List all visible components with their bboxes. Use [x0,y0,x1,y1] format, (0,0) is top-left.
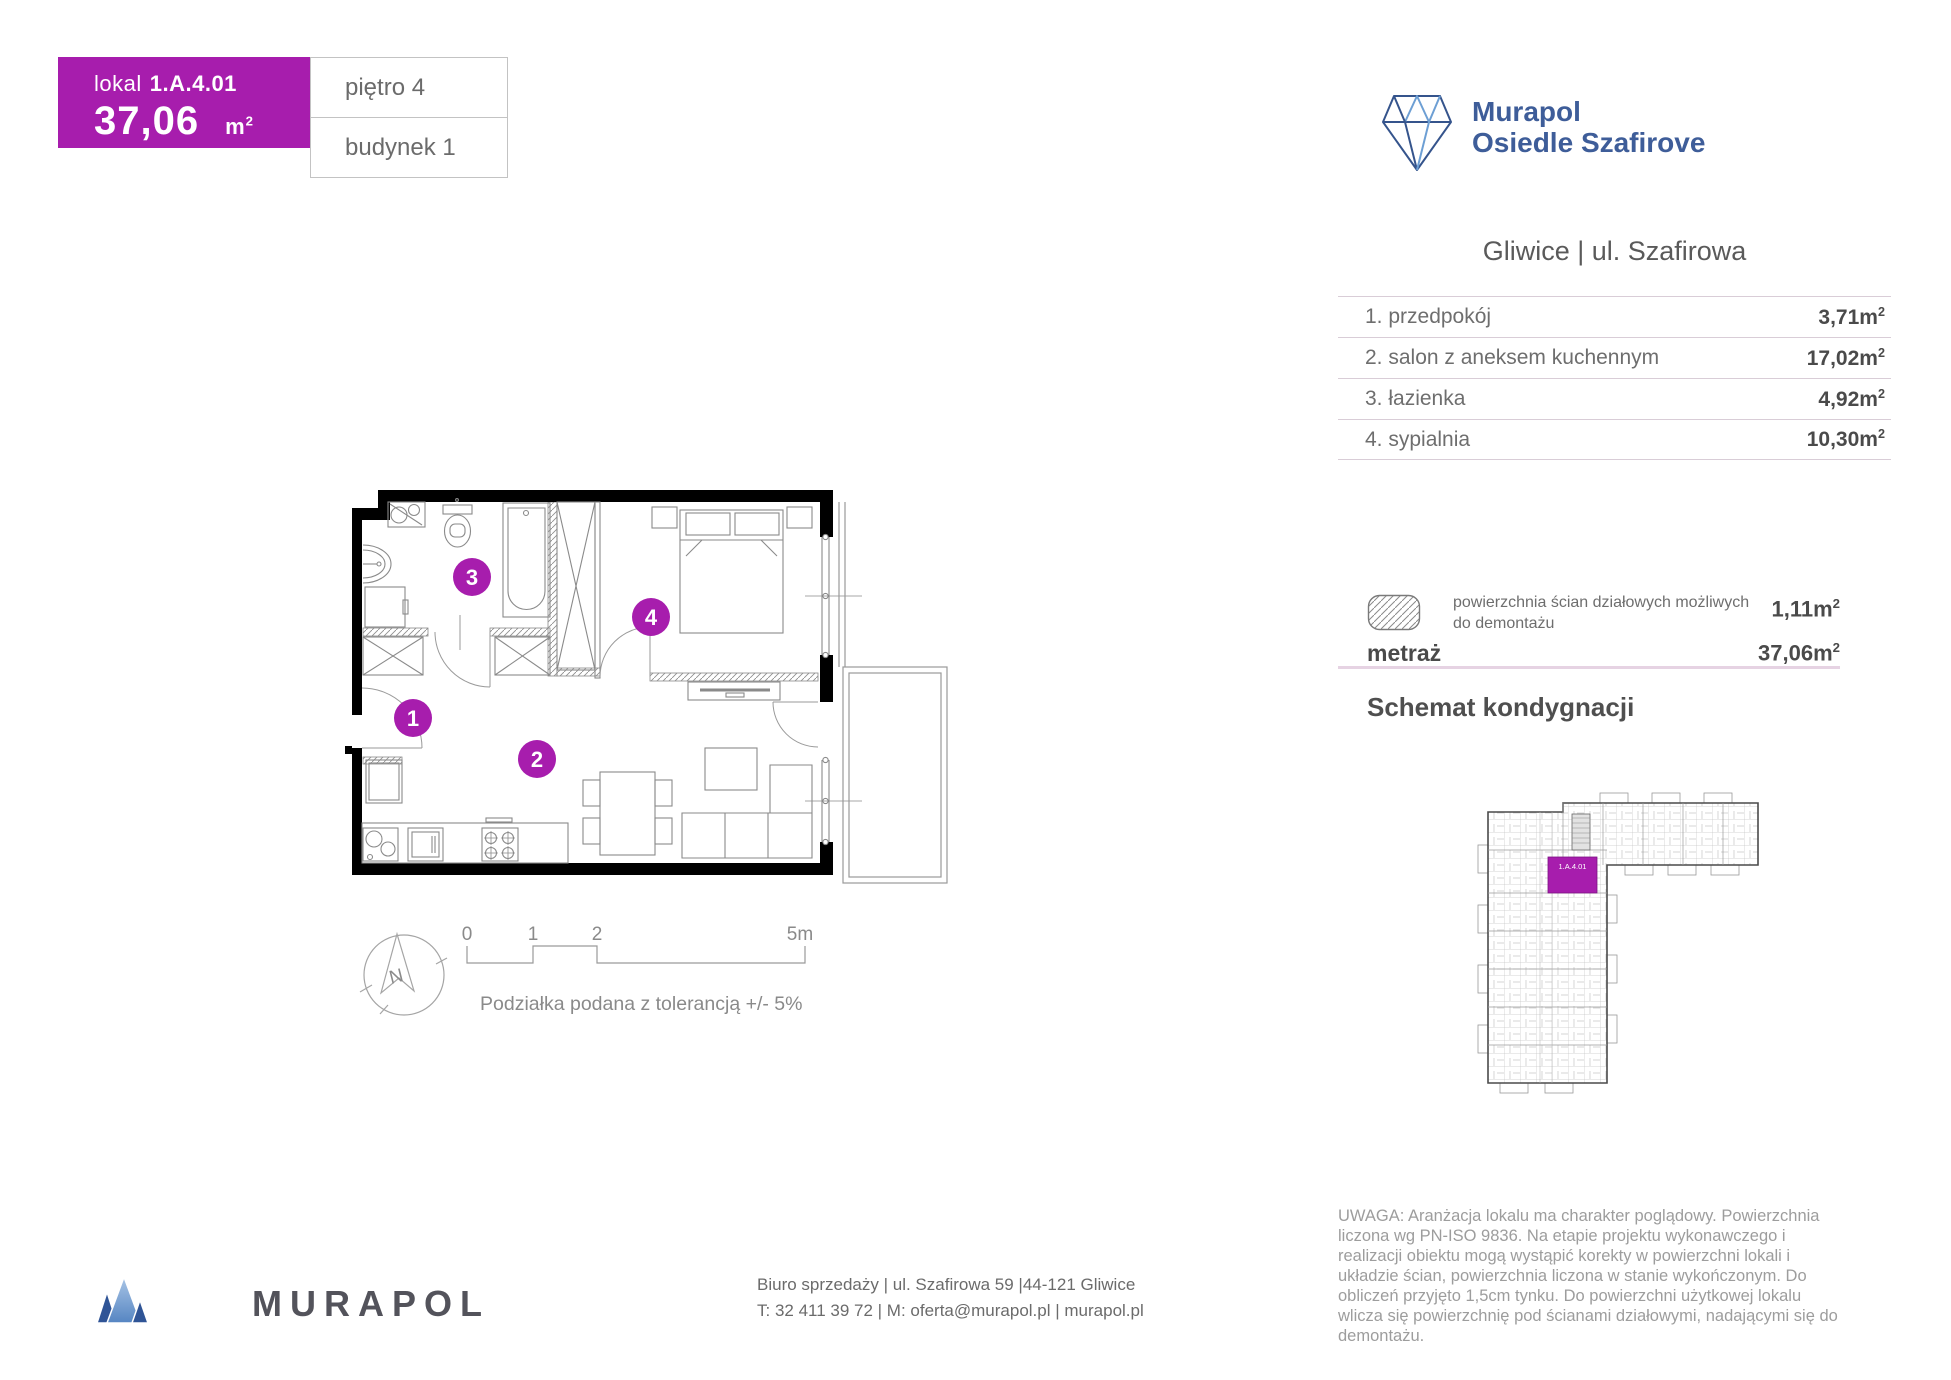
lokal-label: lokal [94,71,142,96]
unit-area-value: 37,06 [94,99,199,143]
schematic-staircase [1572,814,1590,850]
room-table: 1. przedpokój 3,71m2 2. salon z aneksem … [1338,296,1891,460]
nightstand [652,507,677,528]
schematic-outline [1488,803,1758,1083]
nightstand [787,507,812,528]
floor-schematic-title: Schemat kondygnacji [1367,692,1634,723]
unit-meta: piętro 4 budynek 1 [310,57,508,178]
oven [408,828,443,861]
footer-phone-email: T: 32 411 39 72 | M: oferta@murapol.pl |… [757,1298,1144,1324]
bathroom-fixtures [363,499,550,627]
svg-text:1: 1 [528,924,539,945]
room-value: 4,92m2 [1818,387,1885,412]
living-furniture [583,748,812,858]
bathroom-cabinet [365,587,405,627]
kitchen-counter [362,823,568,863]
svg-text:0: 0 [462,924,473,945]
brand-line2: Osiedle Szafirove [1472,127,1705,158]
divider [1338,666,1840,669]
room-label: 1. przedpokój [1365,305,1491,329]
toilet [443,505,472,514]
brand-line1: Murapol [1472,96,1705,127]
floor-schematic: 1.A.4.01 [1465,790,1775,1095]
schematic-unit-label: 1.A.4.01 [1559,862,1587,871]
area-summary: powierzchnia ścian działowych możliwych … [1338,588,1840,667]
room-value: 17,02m2 [1807,346,1885,371]
installation-shaft [557,502,600,678]
room-label: 4. sypialnia [1365,428,1470,452]
building-label: budynek 1 [345,134,456,162]
table-row: 1. przedpokój 3,71m2 [1338,296,1891,337]
svg-text:4: 4 [645,605,658,630]
floor-label: piętro 4 [345,74,425,102]
disclaimer-text: UWAGA: Aranżacja lokalu ma charakter pog… [1338,1206,1850,1346]
burners [484,831,515,860]
room-value: 10,30m2 [1807,427,1885,452]
unit-card: lokal1.A.4.01 37,06m2 [58,57,310,148]
fridge [366,760,402,803]
murapol-logo-icon [95,1276,151,1324]
unit-number-line: lokal1.A.4.01 [94,71,310,97]
room-label: 2. salon z aneksem kuchennym [1365,346,1659,370]
svg-text:1: 1 [407,706,419,731]
chair [655,780,672,806]
footer-contact: Biuro sprzedaży | ul. Szafirowa 59 |44-1… [757,1272,1144,1324]
metraz-label: metraż [1367,640,1441,667]
scale-note: Podziałka podana z tolerancją +/- 5% [480,993,803,1015]
footer-logo-text: MURAPOL [252,1283,490,1325]
chair [655,818,672,844]
balcony [839,502,947,883]
demolition-value: 1,11m2 [1771,596,1840,622]
lokal-number: 1.A.4.01 [150,71,237,96]
svg-text:2: 2 [592,924,603,945]
unit-area-unit: m [225,114,246,139]
demolition-label: powierzchnia ścian działowych możliwych … [1453,592,1753,634]
chair [583,780,600,806]
window [805,534,862,844]
bedroom-furniture [652,507,812,700]
location-heading: Gliwice | ul. Szafirowa [1338,236,1891,267]
compass-icon [360,934,447,1015]
footer-address: Biuro sprzedaży | ul. Szafirowa 59 |44-1… [757,1272,1144,1298]
bed [680,510,783,633]
floor-plan: 1 2 3 4 N 0 1 2 5m Podziałka podana z to… [330,480,960,1020]
floor-box: piętro 4 [310,57,508,118]
table-row: 4. sypialnia 10,30m2 [1338,419,1891,460]
table-row: 3. łazienka 4,92m2 [1338,378,1891,419]
sofa [682,765,812,858]
scale-bar: 0 1 2 5m [462,924,813,963]
svg-text:5m: 5m [787,924,813,945]
table-row: 2. salon z aneksem kuchennym 17,02m2 [1338,337,1891,378]
svg-text:3: 3 [466,565,478,590]
diamond-logo-icon [1381,92,1453,172]
metraz-value: 37,06m2 [1758,640,1840,666]
unit-area: 37,06m2 [94,99,310,144]
dining-table [600,772,655,855]
brand-name: Murapol Osiedle Szafirove [1472,96,1705,158]
wardrobe [363,637,550,675]
svg-text:2: 2 [531,747,543,772]
building-box: budynek 1 [310,117,508,178]
chair [583,818,600,844]
hatched-wall-icon [1367,594,1421,631]
coffee-table [705,748,757,790]
room-number-badges: 1 2 3 4 [394,558,670,778]
room-value: 3,71m2 [1818,305,1885,330]
room-label: 3. łazienka [1365,387,1465,411]
